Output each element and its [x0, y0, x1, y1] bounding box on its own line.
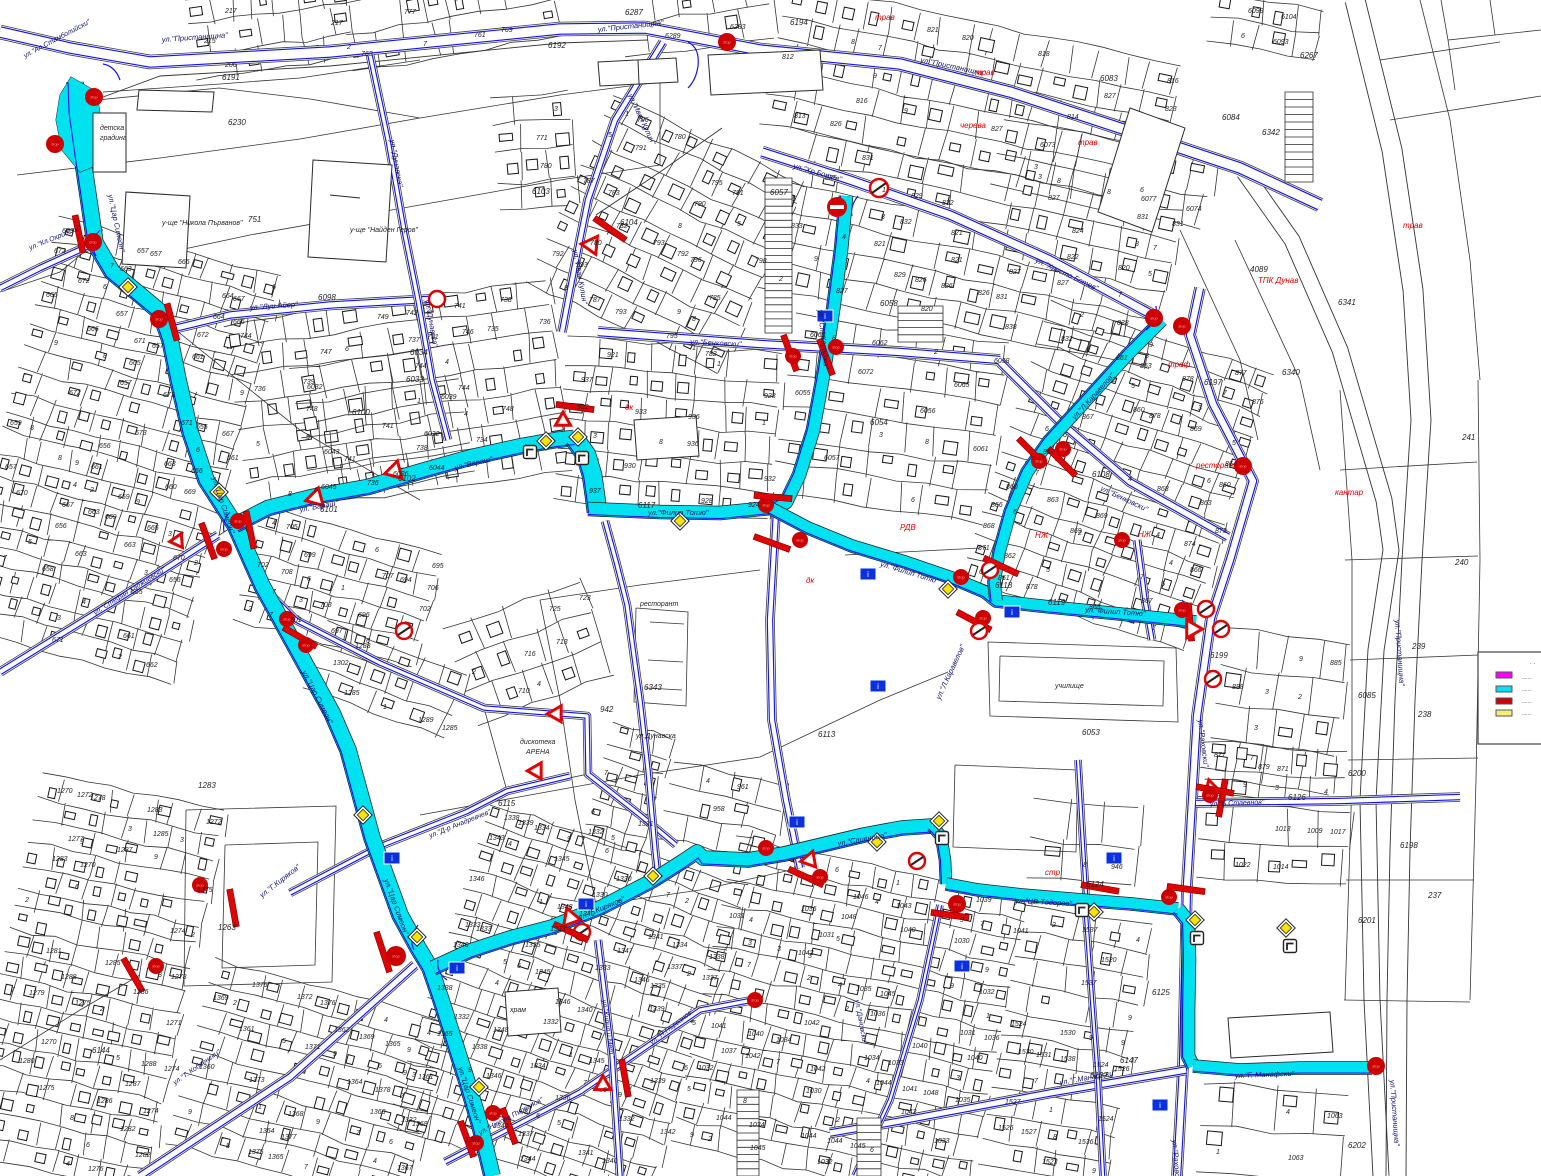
- svg-text:1378: 1378: [375, 1087, 391, 1094]
- svg-text:861: 861: [998, 575, 1010, 582]
- svg-text:кантар: кантар: [1335, 488, 1364, 497]
- svg-text:1373: 1373: [249, 1077, 265, 1084]
- svg-text:6072: 6072: [858, 369, 874, 376]
- svg-text:761: 761: [474, 32, 486, 39]
- svg-text:stop: stop: [1150, 316, 1158, 321]
- svg-text:1063: 1063: [1288, 1155, 1304, 1162]
- svg-text:6: 6: [979, 569, 983, 576]
- svg-text:838: 838: [1005, 324, 1017, 331]
- svg-text:6058: 6058: [880, 299, 898, 308]
- svg-text:9: 9: [154, 854, 158, 861]
- svg-text:1330: 1330: [616, 876, 632, 883]
- svg-text:239: 239: [1411, 642, 1426, 651]
- svg-text:1270: 1270: [41, 1039, 57, 1046]
- svg-text:1341: 1341: [648, 934, 664, 941]
- svg-text:stop: stop: [723, 40, 731, 45]
- svg-text:6: 6: [345, 346, 349, 353]
- svg-text:710: 710: [518, 688, 530, 695]
- svg-text:1030: 1030: [954, 938, 970, 945]
- svg-text:669: 669: [184, 489, 196, 496]
- svg-text:867: 867: [1082, 414, 1095, 421]
- svg-text:785: 785: [709, 295, 721, 302]
- svg-text:stop: stop: [1118, 538, 1126, 543]
- svg-text:2: 2: [190, 932, 195, 939]
- svg-text:9: 9: [1092, 1168, 1096, 1175]
- svg-text:666: 666: [87, 326, 99, 333]
- svg-text:665: 665: [131, 589, 143, 596]
- svg-text:stop: stop: [1165, 895, 1173, 900]
- svg-text:stop: stop: [302, 643, 310, 648]
- svg-text:1270: 1270: [57, 788, 73, 795]
- svg-text:795: 795: [666, 333, 678, 340]
- svg-text:787: 787: [583, 178, 596, 185]
- svg-text:928: 928: [701, 498, 713, 505]
- svg-text:6201: 6201: [1358, 916, 1376, 925]
- svg-text:2: 2: [471, 669, 476, 676]
- svg-text:1283: 1283: [198, 781, 216, 790]
- svg-text:stop: stop: [155, 317, 163, 322]
- svg-text:2: 2: [117, 654, 122, 661]
- svg-text:1341: 1341: [578, 1150, 594, 1157]
- svg-text:702: 702: [257, 562, 269, 569]
- svg-text:1365: 1365: [268, 1154, 284, 1161]
- svg-text:1033: 1033: [888, 1060, 904, 1067]
- svg-text:1287: 1287: [117, 847, 134, 854]
- svg-text:2: 2: [844, 1006, 849, 1013]
- svg-text:1282: 1282: [120, 1126, 136, 1133]
- svg-text:663: 663: [75, 551, 87, 558]
- svg-text:stop: stop: [832, 345, 840, 350]
- svg-text:траф: траф: [1168, 360, 1190, 369]
- svg-text:1063: 1063: [1327, 1113, 1343, 1120]
- svg-text:1036: 1036: [801, 906, 817, 913]
- svg-text:873: 873: [1215, 528, 1227, 535]
- svg-text:9: 9: [950, 983, 954, 990]
- svg-text:4: 4: [749, 917, 753, 924]
- svg-text:9: 9: [904, 108, 908, 115]
- svg-text:734: 734: [476, 437, 488, 444]
- svg-text:5: 5: [1131, 383, 1135, 390]
- svg-text:823: 823: [1165, 106, 1177, 113]
- svg-text:9: 9: [316, 1119, 320, 1126]
- svg-text:9: 9: [80, 839, 84, 846]
- svg-text:2: 2: [399, 1093, 404, 1100]
- svg-text:1009: 1009: [1307, 828, 1323, 835]
- svg-text:661: 661: [91, 464, 103, 471]
- svg-text:1376: 1376: [320, 1000, 336, 1007]
- svg-text:826: 826: [830, 121, 842, 128]
- svg-text:1: 1: [986, 1013, 990, 1020]
- svg-text:2: 2: [346, 44, 351, 51]
- svg-text:6058: 6058: [994, 358, 1010, 365]
- svg-text:749: 749: [377, 314, 389, 321]
- svg-text:9: 9: [985, 967, 989, 974]
- svg-text:6056: 6056: [920, 408, 936, 415]
- svg-text:1040: 1040: [912, 1043, 928, 1050]
- svg-text:863: 863: [1140, 363, 1152, 370]
- svg-text:ТПК Дунав: ТПК Дунав: [1258, 276, 1298, 285]
- svg-text:6147: 6147: [1120, 1056, 1138, 1065]
- svg-text:665: 665: [129, 360, 141, 367]
- svg-text:stop: stop: [751, 998, 759, 1003]
- svg-text:stop: stop: [979, 616, 987, 621]
- svg-text:3: 3: [808, 953, 812, 960]
- svg-text:238: 238: [1417, 710, 1432, 719]
- svg-text:6103: 6103: [532, 187, 550, 196]
- svg-text:4: 4: [1169, 560, 1173, 567]
- svg-text:6: 6: [196, 447, 200, 454]
- svg-text:666: 666: [191, 468, 203, 475]
- svg-text:stop: stop: [953, 902, 961, 907]
- svg-text:665: 665: [46, 292, 58, 299]
- svg-text:3: 3: [1034, 164, 1038, 171]
- svg-text:869: 869: [1190, 426, 1202, 433]
- svg-text:4: 4: [791, 858, 795, 865]
- svg-text:9: 9: [188, 1109, 192, 1116]
- svg-text:6144: 6144: [92, 1046, 110, 1055]
- svg-text:1275: 1275: [39, 1085, 55, 1092]
- svg-text:6085: 6085: [1358, 691, 1376, 700]
- svg-text:трав: трав: [975, 68, 995, 77]
- svg-text:6125: 6125: [1152, 988, 1170, 997]
- svg-text:832: 832: [1061, 336, 1073, 343]
- svg-text:879: 879: [1258, 764, 1270, 771]
- svg-text:2: 2: [89, 487, 94, 494]
- svg-text:1042: 1042: [804, 1020, 820, 1027]
- svg-text:2: 2: [1111, 377, 1116, 384]
- svg-text:8: 8: [226, 1143, 230, 1150]
- svg-text:1372: 1372: [297, 994, 313, 1001]
- svg-text:657: 657: [5, 464, 18, 471]
- svg-text:8: 8: [1053, 1134, 1057, 1141]
- svg-text:866: 866: [1190, 567, 1202, 574]
- svg-text:1537: 1537: [1081, 980, 1098, 987]
- svg-text:stop: stop: [90, 95, 98, 100]
- svg-text:1: 1: [625, 111, 629, 118]
- svg-text:5: 5: [737, 221, 741, 228]
- svg-text:4: 4: [495, 980, 499, 987]
- svg-text:1340: 1340: [602, 1158, 618, 1165]
- svg-text:9: 9: [873, 73, 877, 80]
- svg-text:1339: 1339: [650, 1078, 666, 1085]
- svg-text:9: 9: [567, 836, 571, 843]
- svg-text:657: 657: [152, 343, 165, 350]
- svg-text:1285: 1285: [442, 725, 458, 732]
- svg-text:1281: 1281: [46, 948, 62, 955]
- svg-text:1348: 1348: [557, 904, 573, 911]
- svg-text:1526: 1526: [1114, 1066, 1130, 1073]
- svg-text:864: 864: [1225, 461, 1237, 468]
- svg-text:1527: 1527: [1005, 1099, 1022, 1106]
- svg-text:813: 813: [794, 113, 806, 120]
- svg-text:i: i: [391, 854, 393, 863]
- svg-text:stop: stop: [1059, 447, 1067, 452]
- svg-text:8: 8: [925, 439, 929, 446]
- svg-text:1044: 1044: [716, 1115, 732, 1122]
- svg-text:6055: 6055: [795, 390, 811, 397]
- svg-text:936: 936: [688, 414, 700, 421]
- svg-text:8: 8: [1135, 241, 1139, 248]
- svg-text:НЖ: НЖ: [1138, 530, 1152, 539]
- svg-text:3: 3: [128, 826, 132, 833]
- svg-text:6108: 6108: [1092, 470, 1110, 479]
- svg-text:6: 6: [378, 1063, 382, 1070]
- svg-text:865: 865: [1089, 604, 1101, 611]
- svg-text:780: 780: [590, 240, 602, 247]
- svg-text:780: 780: [674, 134, 686, 141]
- svg-text:5: 5: [1046, 567, 1050, 574]
- svg-text:6: 6: [389, 1139, 393, 1146]
- svg-text:838: 838: [1117, 320, 1129, 327]
- svg-text:1527: 1527: [1021, 1129, 1038, 1136]
- svg-text:6124: 6124: [1086, 880, 1104, 889]
- svg-text:2: 2: [232, 1000, 237, 1007]
- svg-text:827: 827: [1104, 93, 1117, 100]
- svg-text:820: 820: [1118, 265, 1130, 272]
- svg-text:6084: 6084: [1222, 113, 1240, 122]
- svg-text:829: 829: [911, 193, 923, 200]
- svg-text:3: 3: [777, 946, 781, 953]
- svg-text:1531: 1531: [1036, 1052, 1052, 1059]
- svg-text:8: 8: [832, 335, 836, 342]
- svg-text:9: 9: [690, 1132, 694, 1139]
- svg-text:860: 860: [1133, 407, 1145, 414]
- svg-text:stop: stop: [1035, 459, 1043, 464]
- svg-text:1042: 1042: [745, 1053, 761, 1060]
- svg-text:8: 8: [158, 972, 162, 979]
- svg-text:6342: 6342: [1262, 128, 1280, 137]
- svg-text:АРЕНА: АРЕНА: [525, 749, 550, 756]
- svg-text:885: 885: [1330, 660, 1342, 667]
- svg-text:6: 6: [684, 1065, 688, 1072]
- svg-text:5: 5: [1148, 271, 1152, 278]
- svg-text:2: 2: [99, 1006, 104, 1013]
- svg-text:8: 8: [1145, 353, 1149, 360]
- svg-text:661: 661: [192, 354, 204, 361]
- svg-text:831: 831: [1172, 221, 1184, 228]
- svg-text:1031: 1031: [819, 932, 835, 939]
- svg-text:1274: 1274: [164, 1066, 180, 1073]
- svg-text:6119: 6119: [1048, 598, 1066, 607]
- svg-text:930: 930: [624, 463, 636, 470]
- svg-text:1340: 1340: [493, 1123, 509, 1130]
- svg-text:6200: 6200: [1348, 769, 1366, 778]
- svg-text:1271: 1271: [166, 1020, 182, 1027]
- svg-text:6: 6: [75, 884, 79, 891]
- svg-text:937: 937: [581, 377, 594, 384]
- svg-text:1335: 1335: [525, 942, 541, 949]
- svg-text:751: 751: [248, 215, 261, 224]
- svg-text:725: 725: [549, 606, 561, 613]
- svg-text:6: 6: [591, 809, 595, 816]
- svg-text:8: 8: [743, 1098, 747, 1105]
- svg-text:1046: 1046: [853, 894, 869, 901]
- svg-text:6: 6: [307, 576, 311, 583]
- svg-text:1282: 1282: [135, 1152, 151, 1159]
- svg-text:4: 4: [82, 599, 86, 606]
- svg-text:1287: 1287: [125, 1081, 142, 1088]
- svg-text:744: 744: [415, 363, 427, 370]
- svg-text:8: 8: [524, 1109, 528, 1116]
- svg-text:у-ще "Найден Геров": у-ще "Найден Геров": [349, 226, 418, 234]
- svg-text:826: 826: [915, 277, 927, 284]
- svg-text:1330: 1330: [592, 892, 608, 899]
- svg-text:1289: 1289: [418, 717, 434, 724]
- svg-text:6044: 6044: [429, 465, 445, 472]
- svg-text:6057: 6057: [824, 455, 841, 462]
- svg-text:1530: 1530: [1018, 1049, 1034, 1056]
- svg-text:1040: 1040: [900, 927, 916, 934]
- svg-text:4: 4: [1286, 1109, 1290, 1116]
- svg-text:НЖ: НЖ: [1035, 531, 1049, 540]
- svg-text:1: 1: [882, 187, 886, 194]
- svg-text:1048: 1048: [923, 1090, 939, 1097]
- svg-text:665: 665: [147, 525, 159, 532]
- svg-text:783: 783: [608, 190, 620, 197]
- svg-text:stop: stop: [1206, 793, 1214, 798]
- svg-text:6: 6: [1241, 33, 1245, 40]
- svg-text:1346: 1346: [486, 1073, 502, 1080]
- svg-text:дискотека: дискотека: [520, 738, 555, 746]
- svg-text:1040: 1040: [967, 1055, 983, 1062]
- svg-text:9: 9: [1128, 1015, 1132, 1022]
- svg-text:696: 696: [358, 612, 370, 619]
- svg-text:821: 821: [874, 241, 886, 248]
- svg-text:6032: 6032: [307, 384, 323, 391]
- svg-text:3: 3: [299, 597, 303, 604]
- svg-text:5: 5: [306, 434, 310, 441]
- svg-text:860: 860: [1219, 482, 1231, 489]
- svg-text:1343: 1343: [489, 835, 505, 842]
- svg-text:4: 4: [384, 1017, 388, 1024]
- svg-text:6194: 6194: [790, 18, 808, 27]
- svg-text:9: 9: [468, 1067, 472, 1074]
- svg-text:871: 871: [978, 545, 990, 552]
- svg-text:4: 4: [66, 1161, 70, 1168]
- svg-text:670: 670: [16, 490, 28, 497]
- svg-text:2: 2: [247, 606, 252, 613]
- svg-text:744: 744: [240, 333, 252, 340]
- svg-text:1: 1: [258, 1104, 262, 1111]
- svg-text:780: 780: [540, 163, 552, 170]
- svg-text:831: 831: [1137, 214, 1149, 221]
- svg-text:814: 814: [1067, 114, 1079, 121]
- svg-text:1: 1: [341, 585, 345, 592]
- svg-text:3: 3: [748, 940, 752, 947]
- svg-text:1048: 1048: [841, 914, 857, 921]
- svg-text:8: 8: [70, 1115, 74, 1122]
- svg-text:3: 3: [180, 837, 184, 844]
- svg-text:746: 746: [462, 329, 474, 336]
- svg-text:1333: 1333: [550, 926, 566, 933]
- svg-text:6267: 6267: [1300, 51, 1318, 60]
- svg-text:736: 736: [367, 480, 379, 487]
- svg-text:820: 820: [921, 306, 933, 313]
- svg-text:736: 736: [539, 319, 551, 326]
- svg-text:6: 6: [536, 1113, 540, 1120]
- svg-text:1520: 1520: [1101, 957, 1117, 964]
- svg-text:1042: 1042: [810, 1066, 826, 1073]
- svg-text:6054: 6054: [870, 418, 888, 427]
- svg-text:2: 2: [193, 560, 198, 567]
- svg-text:6115: 6115: [498, 799, 516, 808]
- svg-text:1274: 1274: [170, 928, 186, 935]
- svg-text:стр: стр: [1045, 868, 1061, 877]
- svg-text:792: 792: [677, 251, 689, 258]
- svg-text:1278: 1278: [90, 795, 106, 802]
- svg-text:1270: 1270: [80, 862, 96, 869]
- svg-text:stop: stop: [789, 354, 797, 359]
- svg-text:1345: 1345: [589, 1058, 605, 1065]
- svg-text:5: 5: [692, 1020, 696, 1027]
- svg-text:1345: 1345: [535, 969, 551, 976]
- svg-text:1272: 1272: [206, 819, 222, 826]
- svg-text:4089: 4089: [1250, 265, 1268, 274]
- svg-text:1334: 1334: [530, 1063, 546, 1070]
- svg-text:1285: 1285: [105, 960, 121, 967]
- svg-text:трав: трав: [1403, 221, 1423, 230]
- svg-text:6032: 6032: [424, 431, 440, 438]
- svg-text:741: 741: [454, 303, 466, 310]
- svg-text:1365: 1365: [437, 1031, 453, 1038]
- svg-text:1369: 1369: [213, 995, 229, 1002]
- svg-text:667: 667: [62, 502, 75, 509]
- svg-text:дк: дк: [806, 576, 815, 585]
- svg-text:9: 9: [814, 256, 818, 263]
- svg-text:6191: 6191: [222, 73, 240, 82]
- svg-text:1361: 1361: [418, 1074, 434, 1081]
- svg-text:6: 6: [272, 284, 276, 291]
- svg-text:738: 738: [500, 297, 512, 304]
- svg-text:1030: 1030: [806, 1088, 822, 1095]
- svg-text:6: 6: [375, 547, 379, 554]
- svg-text:1371: 1371: [305, 1044, 321, 1051]
- svg-text:1031: 1031: [729, 913, 745, 920]
- svg-text:2: 2: [24, 897, 29, 904]
- svg-text:6343: 6343: [644, 683, 662, 692]
- svg-text:888: 888: [1232, 684, 1244, 691]
- svg-text:1036: 1036: [870, 1011, 886, 1018]
- svg-text:1346: 1346: [555, 999, 571, 1006]
- svg-text:747: 747: [320, 349, 333, 356]
- svg-text:821: 821: [951, 257, 963, 264]
- svg-text:1280: 1280: [19, 1058, 35, 1065]
- svg-text:училище: училище: [1054, 683, 1084, 690]
- svg-text:1: 1: [383, 704, 387, 711]
- svg-text:241: 241: [1461, 433, 1475, 442]
- svg-text:6101: 6101: [320, 505, 338, 514]
- svg-text:1013: 1013: [1275, 826, 1291, 833]
- svg-text:stop: stop: [762, 846, 770, 851]
- svg-text:1302: 1302: [333, 660, 349, 667]
- svg-text:672: 672: [54, 248, 66, 255]
- svg-text:1045: 1045: [850, 1143, 866, 1150]
- svg-text:1: 1: [717, 361, 721, 368]
- svg-text:5: 5: [28, 539, 32, 546]
- svg-text:867: 867: [1141, 598, 1154, 605]
- svg-text:694: 694: [400, 577, 412, 584]
- svg-text:671: 671: [181, 420, 193, 427]
- svg-text:723: 723: [579, 595, 591, 602]
- svg-text:6192: 6192: [548, 41, 566, 50]
- svg-text:1368: 1368: [370, 1109, 386, 1116]
- svg-text:708: 708: [281, 569, 293, 576]
- svg-text:1335: 1335: [650, 983, 666, 990]
- svg-text:5: 5: [1161, 581, 1165, 588]
- svg-text:4: 4: [73, 482, 77, 489]
- svg-text:1536: 1536: [1078, 1139, 1094, 1146]
- svg-text:4: 4: [427, 1030, 431, 1037]
